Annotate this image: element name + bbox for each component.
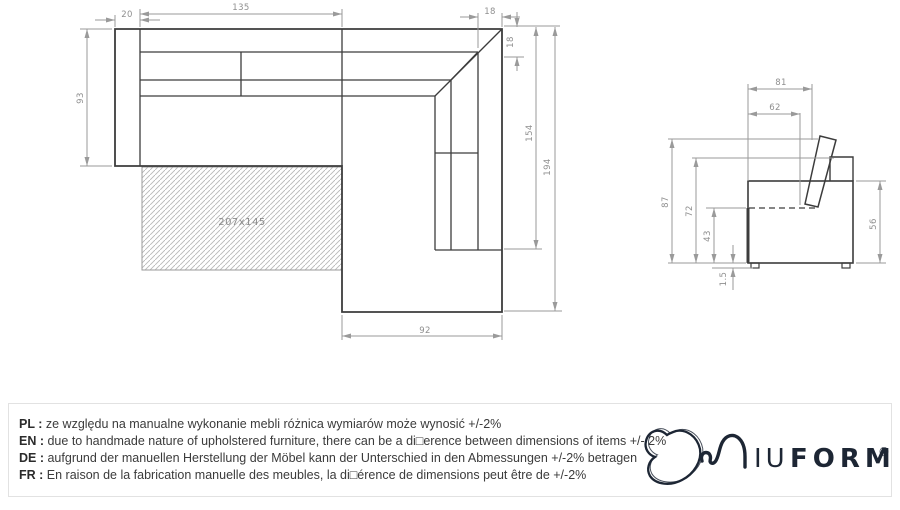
dim-label-72: 72 [685,205,695,217]
miuform-logo: IU FORM ® [638,418,900,493]
backrest-panel [830,157,853,181]
dim-label-81: 81 [775,78,787,88]
dim-label-135: 135 [232,3,249,13]
dim-label-43: 43 [703,230,713,242]
dim-label-154: 154 [525,124,535,141]
disclaimer-text-fr: En raison de la fabrication manuelle des… [47,468,586,482]
front-panel [747,208,750,263]
furniture-dimension-drawing: 207x145 [0,0,900,420]
side-view-drawing: 81 62 87 72 43 1.5 56 [661,78,886,290]
dim-label-18-top: 18 [484,7,496,17]
sleeping-area-hatch: 207x145 [142,167,342,270]
disclaimer-lang-en: EN : [19,434,44,448]
logo-m-glyph [701,435,745,467]
dim-label-93: 93 [76,92,86,104]
dim-label-194: 194 [543,158,553,175]
disclaimer-text-pl: ze względu na manualne wykonanie mebli r… [46,417,501,431]
dim-label-87: 87 [661,196,671,208]
side-dimension-labels: 81 62 87 72 43 1.5 56 [661,78,879,286]
dim-label-56: 56 [869,218,879,230]
plan-view-drawing: 207x145 [76,3,562,340]
dim-label-92: 92 [419,326,431,336]
registered-trademark-icon: ® [878,445,890,459]
dim-label-62: 62 [769,103,781,113]
dim-label-1-5: 1.5 [719,272,729,287]
backrest-cushion [805,136,836,207]
disclaimer-text-en: due to handmade nature of upholstered fu… [47,434,666,448]
disclaimer-lang-pl: PL : [19,417,42,431]
disclaimer-lang-fr: FR : [19,468,43,482]
dim-label-18-side: 18 [506,36,516,48]
sleeping-area-label: 207x145 [218,217,266,228]
bean-icon [646,428,704,484]
dim-label-20: 20 [121,10,133,20]
disclaimer-text-de: aufgrund der manuellen Herstellung der M… [47,451,637,465]
disclaimer-lang-de: DE : [19,451,44,465]
technical-drawing-sheet: { "plan_view": { "sleeping_area_label": … [0,0,900,510]
logo-word-light: IU [754,444,789,474]
